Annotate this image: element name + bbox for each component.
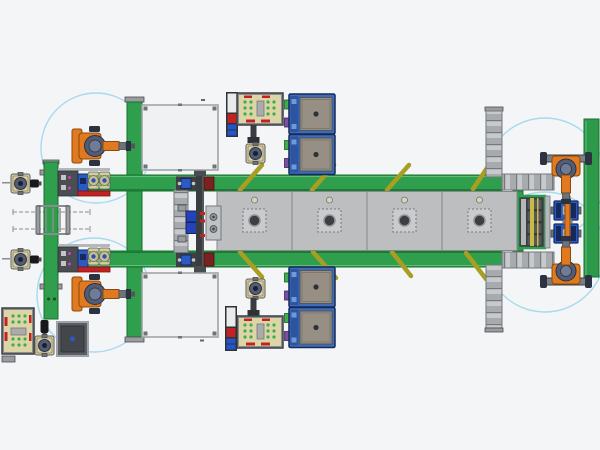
part-nest-fixture	[11, 173, 30, 195]
end-rack	[518, 196, 550, 248]
conveyor-pallet	[292, 192, 367, 251]
process-machine	[285, 267, 336, 307]
fixture-plate	[237, 93, 283, 125]
process-machine	[285, 135, 336, 175]
cad-layout-viewport	[0, 0, 600, 450]
pallet-layer	[217, 192, 517, 251]
process-machine	[285, 308, 336, 348]
conveyor-pallet	[367, 192, 442, 251]
conveyor-pallet	[442, 192, 517, 251]
press-machine-top	[142, 104, 218, 172]
assembly-line-drawing	[0, 0, 600, 450]
inspection-device	[246, 143, 265, 165]
left-main-rail	[127, 102, 142, 337]
press-machine-bottom	[142, 272, 218, 339]
conveyor-pallet	[217, 192, 292, 251]
fixture-plate	[2, 308, 34, 354]
part-nest-fixture	[35, 335, 54, 357]
fixture-plate	[237, 316, 283, 348]
control-column	[225, 306, 237, 351]
part-nest-fixture	[11, 249, 30, 271]
process-machine	[285, 94, 336, 134]
central-transfer-station	[174, 166, 221, 275]
top-conveyor-rail	[58, 175, 502, 191]
inspection-device	[246, 278, 265, 300]
control-column	[226, 92, 238, 137]
left-outer-rail	[44, 162, 58, 319]
bottom-conveyor-rail	[58, 251, 502, 267]
